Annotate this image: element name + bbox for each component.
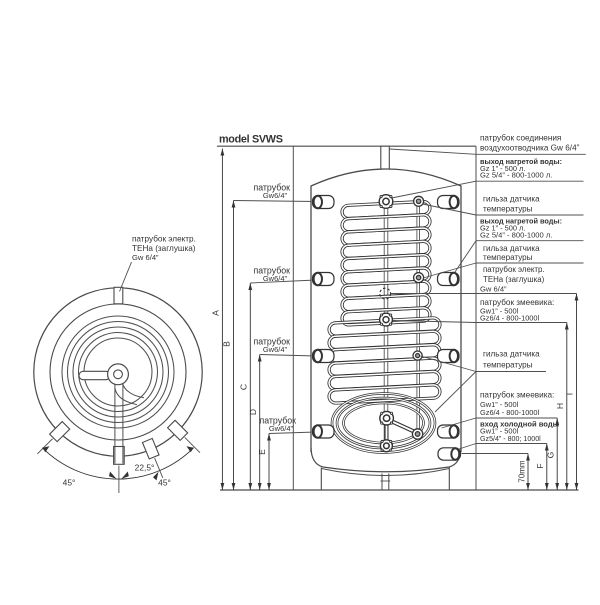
svg-text:D: D [248, 409, 258, 415]
svg-text:Gw6/4”: Gw6/4” [263, 345, 288, 354]
svg-text:70mm: 70mm [518, 460, 527, 483]
svg-text:Gz6/4 - 800-1000l: Gz6/4 - 800-1000l [480, 408, 540, 417]
svg-text:патрубок змеевика:: патрубок змеевика: [480, 391, 554, 400]
svg-text:22,5°: 22,5° [135, 463, 155, 473]
svg-text:Gz6/4 - 800-1000l: Gz6/4 - 800-1000l [480, 313, 540, 322]
svg-text:A: A [211, 310, 221, 316]
svg-text:Gz5/4” - 800; 1000l: Gz5/4” - 800; 1000l [480, 435, 541, 443]
svg-text:воздухоотводчика Gw 6/4”: воздухоотводчика Gw 6/4” [480, 144, 580, 153]
svg-text:45°: 45° [63, 478, 76, 488]
svg-text:Gw6/4”: Gw6/4” [269, 424, 294, 433]
svg-text:Gw 6/4”: Gw 6/4” [480, 284, 507, 293]
svg-text:гильза датчика: гильза датчика [483, 350, 540, 359]
svg-text:C: C [239, 384, 249, 390]
svg-text:Gw6/4”: Gw6/4” [263, 191, 288, 200]
svg-text:Gz 5/4” - 800-1000 л.: Gz 5/4” - 800-1000 л. [480, 171, 552, 180]
svg-text:E: E [257, 449, 267, 455]
svg-text:температуры: температуры [483, 361, 533, 370]
svg-text:model SVWS: model SVWS [219, 133, 283, 145]
svg-text:ТЕНа (заглушка): ТЕНа (заглушка) [132, 244, 196, 253]
svg-text:патрубок соединения: патрубок соединения [480, 134, 561, 143]
svg-text:патрубок электр.: патрубок электр. [483, 265, 545, 274]
svg-text:гильза датчика: гильза датчика [483, 244, 540, 253]
svg-text:гильза датчика: гильза датчика [483, 195, 540, 204]
svg-text:I: I [565, 393, 575, 395]
svg-text:B: B [222, 341, 232, 347]
svg-text:патрубок электр.: патрубок электр. [132, 235, 196, 244]
svg-text:G: G [545, 451, 555, 458]
svg-text:Gw 6/4”: Gw 6/4” [132, 253, 159, 262]
svg-text:температуры: температуры [483, 253, 533, 262]
svg-text:Gz 5/4” - 800-1000 л.: Gz 5/4” - 800-1000 л. [480, 230, 552, 239]
svg-text:ТЕНа (заглушка): ТЕНа (заглушка) [483, 275, 545, 284]
svg-text:45°: 45° [158, 478, 171, 488]
svg-text:температуры: температуры [483, 205, 533, 214]
svg-text:Gw6/4”: Gw6/4” [263, 274, 288, 283]
svg-text:H: H [555, 403, 565, 409]
svg-text:F: F [535, 463, 545, 468]
